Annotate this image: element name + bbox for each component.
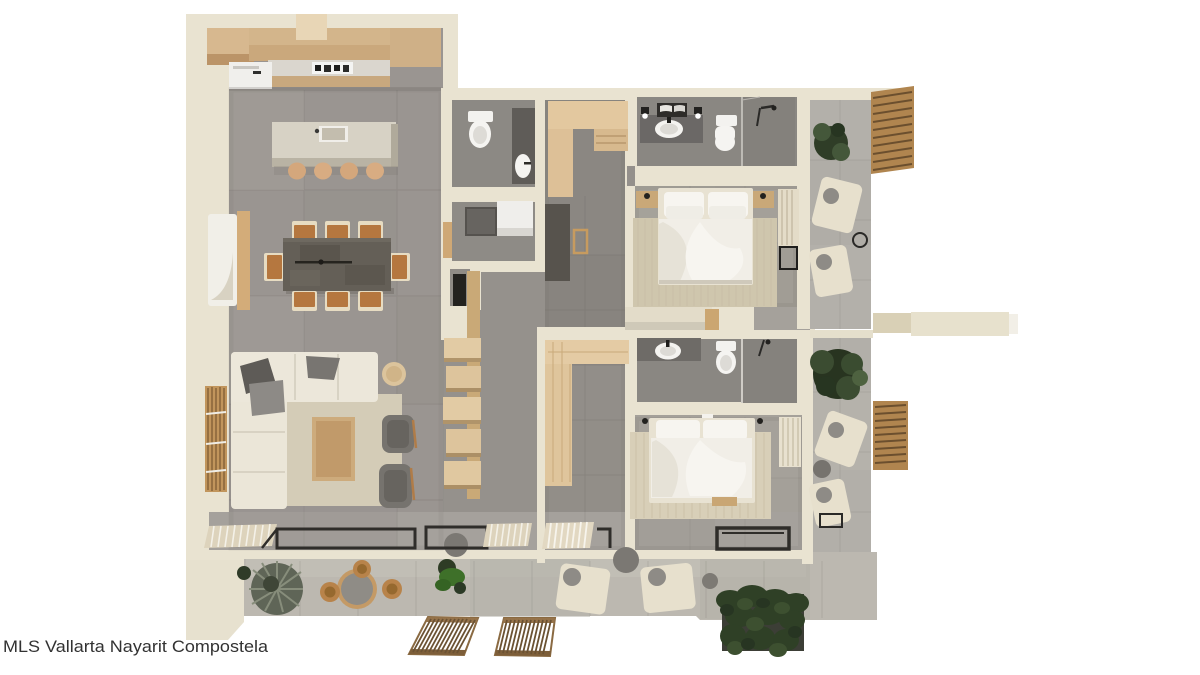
svg-text:MLS Vallarta Nayarit Compostel: MLS Vallarta Nayarit Compostela [3, 637, 269, 656]
